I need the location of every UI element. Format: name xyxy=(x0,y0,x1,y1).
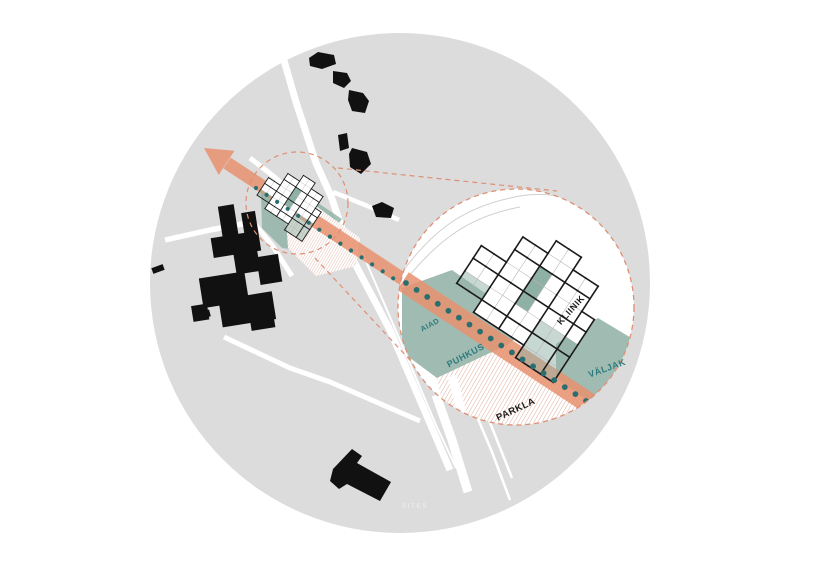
watermark-text: SITES xyxy=(402,503,428,510)
diagram-canvas: AIAD PUHKUS KLIINIK VÄLJAK PARKLA SITES xyxy=(0,0,830,576)
site-analysis-diagram: AIAD PUHKUS KLIINIK VÄLJAK PARKLA SITES xyxy=(0,0,830,576)
